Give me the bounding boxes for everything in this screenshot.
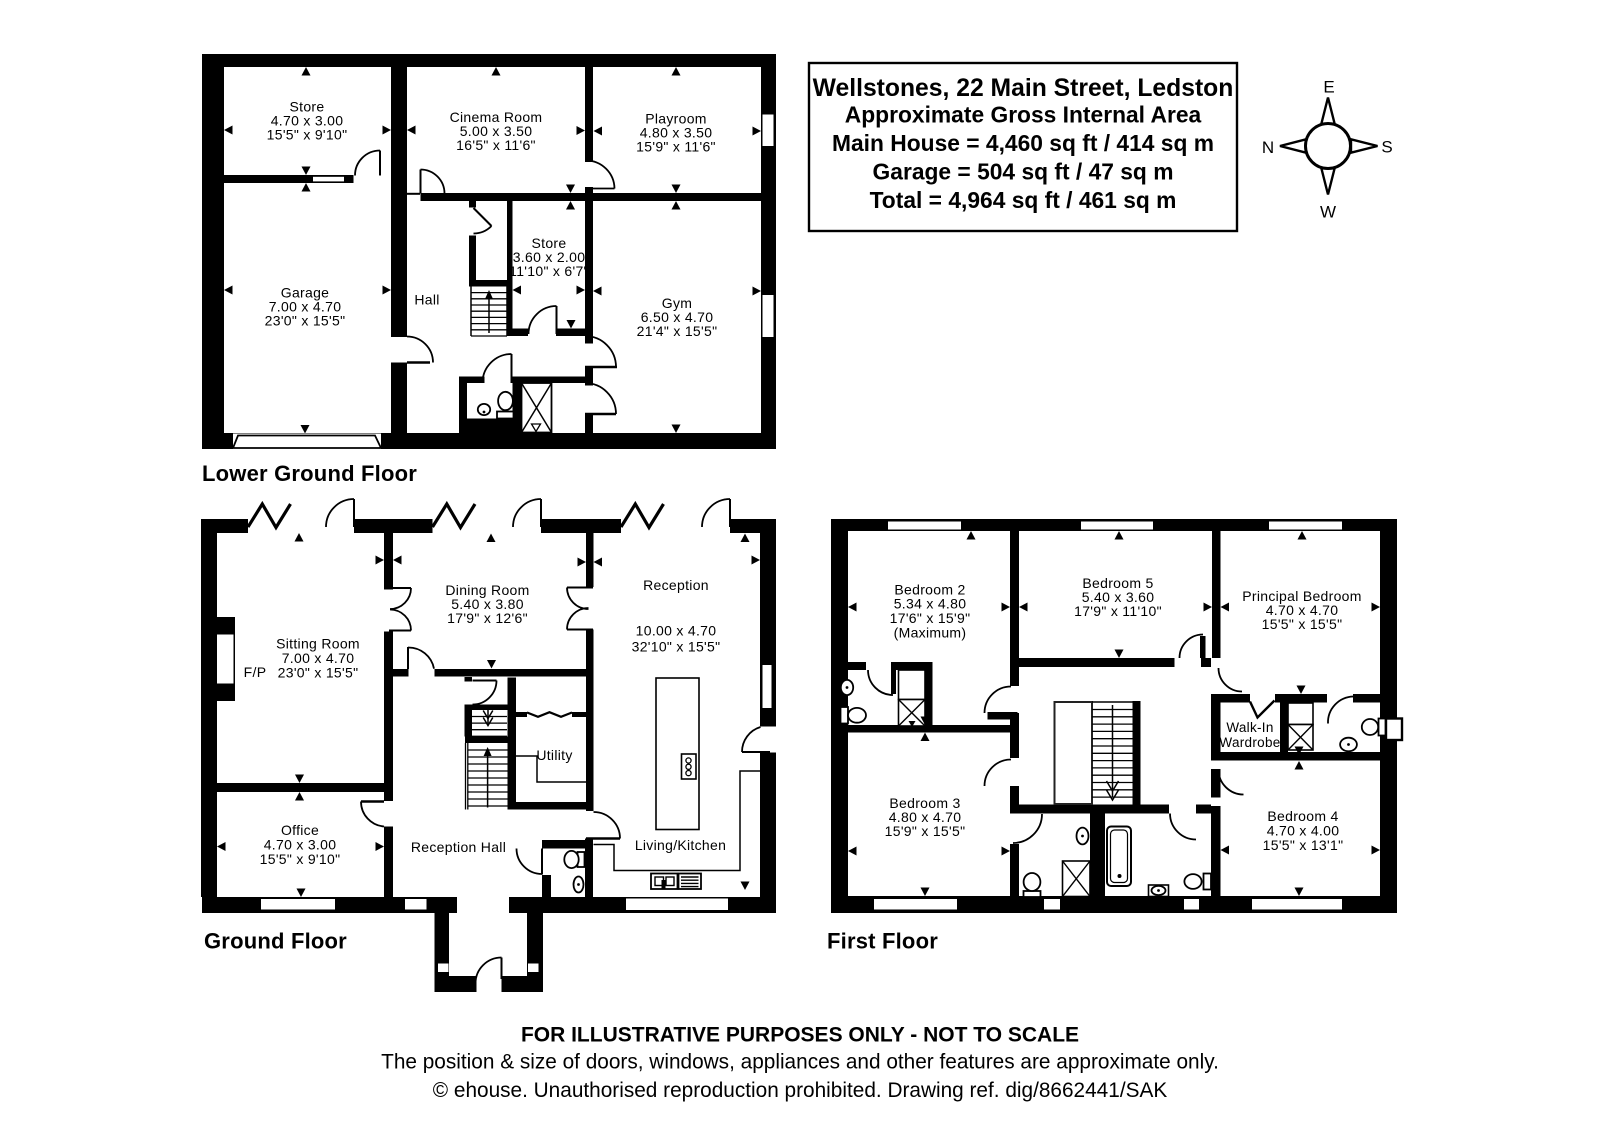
svg-text:Wardrobe: Wardrobe (1219, 735, 1280, 750)
svg-text:F/P: F/P (244, 664, 267, 680)
svg-text:S: S (1381, 138, 1392, 157)
svg-text:17'9" x 11'10": 17'9" x 11'10" (1074, 603, 1162, 619)
svg-text:Reception Hall: Reception Hall (411, 839, 506, 855)
svg-text:15'5" x 15'5": 15'5" x 15'5" (1262, 616, 1343, 632)
svg-text:10.00 x 4.70: 10.00 x 4.70 (636, 623, 717, 639)
svg-text:Garage = 504 sq ft / 47 sq m: Garage = 504 sq ft / 47 sq m (873, 159, 1174, 185)
svg-text:FOR ILLUSTRATIVE PURPOSES ONLY: FOR ILLUSTRATIVE PURPOSES ONLY - NOT TO … (521, 1024, 1079, 1047)
svg-text:Living/Kitchen: Living/Kitchen (635, 837, 726, 853)
svg-text:21'4" x 15'5": 21'4" x 15'5" (637, 323, 718, 339)
svg-text:Utility: Utility (536, 747, 572, 763)
svg-text:© ehouse. Unauthorised reprodu: © ehouse. Unauthorised reproduction proh… (433, 1079, 1168, 1102)
svg-text:Approximate Gross Internal Are: Approximate Gross Internal Area (845, 102, 1202, 128)
svg-text:16'5" x 11'6": 16'5" x 11'6" (456, 137, 536, 153)
svg-text:E: E (1323, 78, 1334, 97)
svg-text:(Maximum): (Maximum) (894, 625, 967, 641)
svg-text:32'10" x 15'5": 32'10" x 15'5" (632, 639, 721, 655)
svg-text:Ground Floor: Ground Floor (204, 929, 347, 954)
svg-text:First Floor: First Floor (827, 929, 938, 954)
svg-text:11'10" x 6'7": 11'10" x 6'7" (509, 263, 589, 279)
svg-text:Wellstones, 22 Main Street, Le: Wellstones, 22 Main Street, Ledston (813, 75, 1234, 102)
svg-text:Main House = 4,460 sq ft / 414: Main House = 4,460 sq ft / 414 sq m (832, 130, 1214, 156)
svg-text:15'9" x 11'6": 15'9" x 11'6" (636, 139, 716, 155)
svg-text:15'5" x 9'10": 15'5" x 9'10" (267, 127, 348, 143)
svg-text:The position & size of doors,: The position & size of doors, windows, a… (381, 1051, 1219, 1074)
svg-text:Total = 4,964 sq ft / 461 sq m: Total = 4,964 sq ft / 461 sq m (870, 187, 1177, 213)
svg-text:15'5" x 9'10": 15'5" x 9'10" (260, 851, 341, 867)
svg-text:Hall: Hall (414, 292, 439, 308)
svg-text:23'0" x 15'5": 23'0" x 15'5" (278, 665, 359, 681)
svg-text:N: N (1262, 138, 1274, 157)
svg-text:W: W (1320, 203, 1336, 222)
svg-text:15'5" x 13'1": 15'5" x 13'1" (1263, 837, 1344, 853)
svg-text:23'0" x 15'5": 23'0" x 15'5" (265, 313, 346, 329)
svg-text:Reception: Reception (643, 577, 709, 593)
svg-text:17'9" x 12'6": 17'9" x 12'6" (447, 610, 528, 626)
svg-text:15'9" x 15'5": 15'9" x 15'5" (885, 823, 966, 839)
svg-text:Lower Ground Floor: Lower Ground Floor (202, 461, 417, 486)
svg-text:Walk-In: Walk-In (1226, 720, 1273, 735)
